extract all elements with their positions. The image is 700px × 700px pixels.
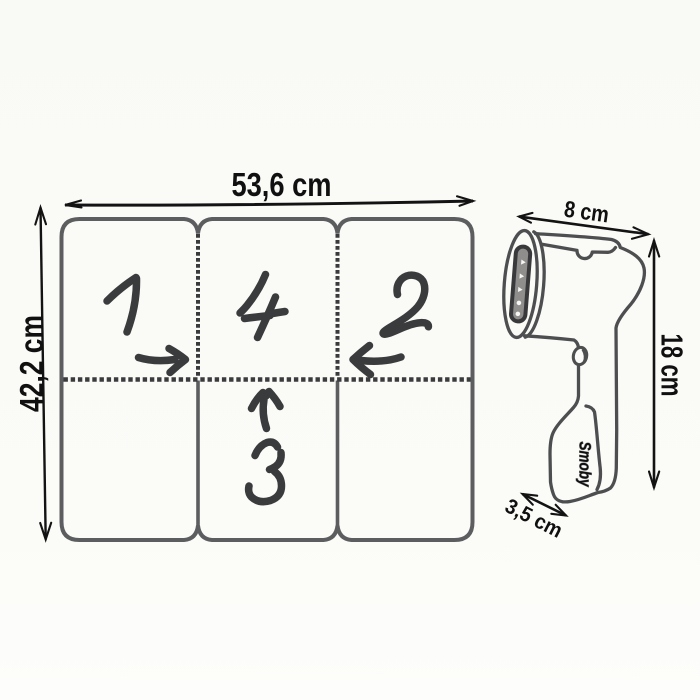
svg-text:53,6 cm: 53,6 cm xyxy=(232,166,332,203)
svg-text:18 cm: 18 cm xyxy=(655,334,690,397)
svg-text:Smoby: Smoby xyxy=(576,442,595,488)
svg-text:42,2 cm: 42,2 cm xyxy=(13,315,50,412)
